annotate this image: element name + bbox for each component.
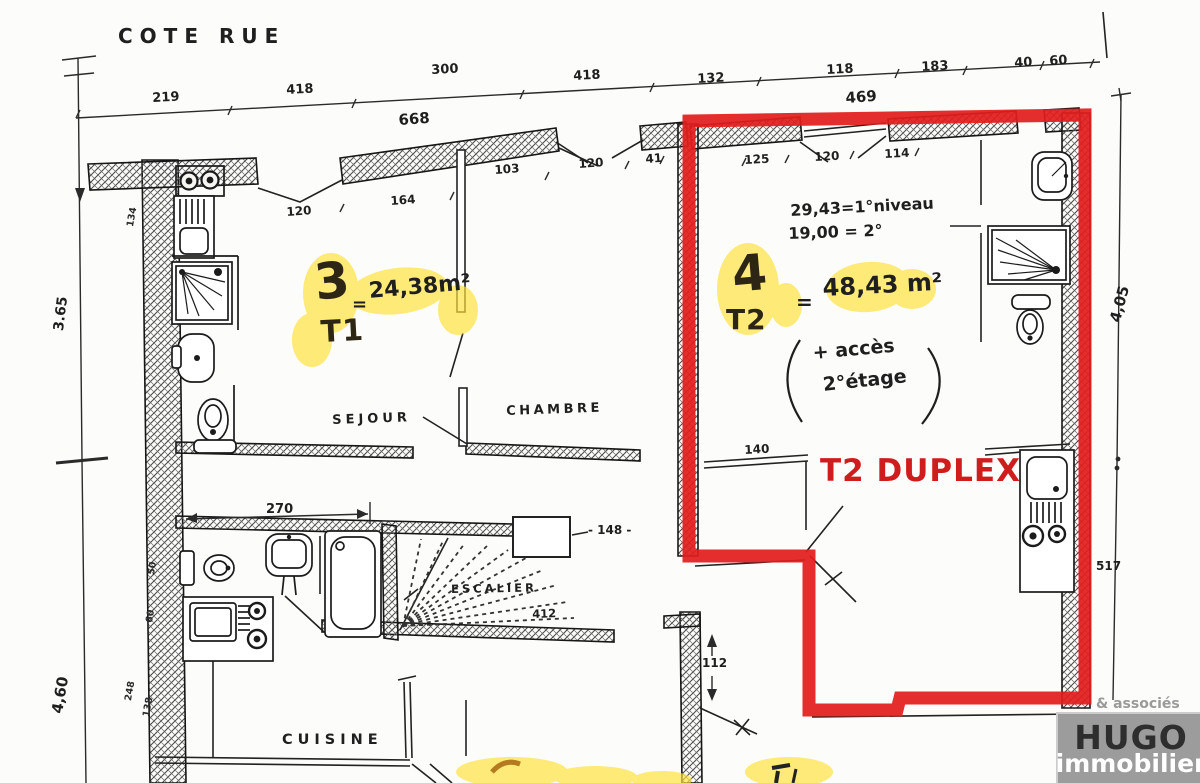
- duplex-label: T2 DUPLEX: [820, 456, 1021, 487]
- apt4-type: T2: [726, 306, 767, 334]
- room-escalier: ESCALIER: [451, 583, 537, 596]
- dim-shelf-140: 140: [744, 443, 770, 456]
- floor-plan-page: COTE RUE 219 418 300 418 132 118 183 40 …: [0, 0, 1200, 783]
- dim-apt3-5: 41: [645, 152, 662, 165]
- dim-apt3-3: 103: [494, 162, 520, 176]
- dim-top-3: 300: [431, 63, 459, 77]
- dim-left-sm-2: 50: [147, 561, 159, 576]
- dim-top-4: 418: [573, 69, 601, 83]
- dim-top-9: 60: [1049, 54, 1068, 68]
- dim-apt4-3: 114: [884, 147, 910, 160]
- dim-apt3-4: 120: [578, 156, 604, 170]
- dim-top-2: 418: [286, 83, 314, 97]
- apt3-equals: =: [352, 296, 367, 314]
- walls: [88, 108, 1090, 783]
- apt4-equals: =: [796, 292, 813, 312]
- dim-left-sm-3: 60: [145, 609, 157, 624]
- dim-top-8: 40: [1014, 56, 1033, 70]
- dim-apt3-1: 120: [286, 204, 312, 218]
- dim-top-1: 219: [152, 91, 180, 105]
- apt4-fixtures: [988, 152, 1074, 592]
- dim-left-365: 3.65: [52, 296, 70, 332]
- room-cuisine: CUISINE: [282, 733, 383, 748]
- dim-412: 412: [532, 608, 556, 620]
- dim-148: - 148 -: [588, 524, 631, 536]
- street-label: COTE RUE: [118, 26, 285, 46]
- plan-drawing: [0, 0, 1200, 783]
- dim-apt4-2: 120: [814, 150, 840, 163]
- apt4-number: 4: [730, 247, 770, 300]
- bathroom-fixtures: [180, 531, 381, 661]
- yellow-highlights: [292, 243, 936, 783]
- logo-tagline: immobilier: [1056, 753, 1200, 776]
- dim-469: 469: [845, 89, 877, 106]
- dim-apt4-1: 125: [744, 153, 770, 166]
- dim-top-5: 132: [697, 72, 725, 86]
- dim-668: 668: [398, 111, 430, 128]
- dim-right-517: 517: [1096, 560, 1121, 572]
- logo-name: HUGO: [1074, 724, 1188, 752]
- logo-associates: & associés: [1096, 697, 1180, 711]
- apt3-number: 3: [312, 254, 353, 307]
- dim-112: 112: [702, 657, 727, 669]
- dim-top-6: 118: [826, 63, 854, 77]
- apt3-type: T1: [320, 316, 365, 348]
- room-chambre: CHAMBRE: [506, 402, 603, 418]
- apt4-note2: 19,00 = 2°: [788, 223, 883, 242]
- dim-apt3-2: 164: [390, 193, 416, 207]
- dim-270: 270: [266, 503, 293, 516]
- dim-top-7: 183: [921, 60, 949, 74]
- room-sejour: SEJOUR: [332, 411, 411, 427]
- apt4-area: 48,43 m²: [822, 270, 943, 300]
- agency-logo: HUGO immobilier: [1056, 712, 1200, 783]
